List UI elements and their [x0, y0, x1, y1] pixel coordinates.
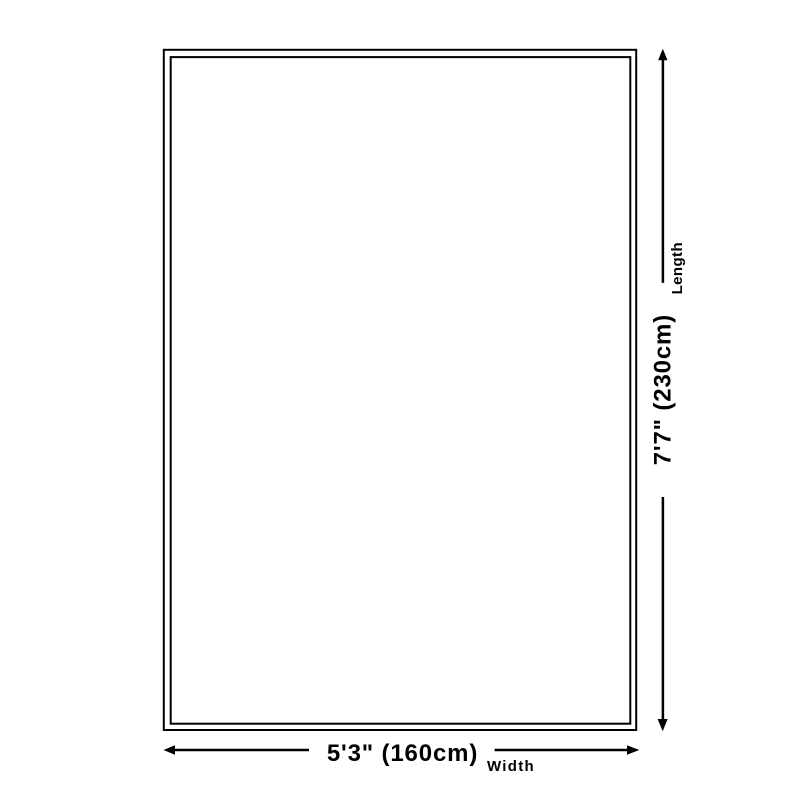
- svg-text:Length: Length: [669, 242, 686, 294]
- svg-text:5'3" (160cm): 5'3" (160cm): [327, 740, 478, 767]
- svg-text:Width: Width: [487, 758, 535, 775]
- svg-text:7'7" (230cm): 7'7" (230cm): [650, 314, 677, 465]
